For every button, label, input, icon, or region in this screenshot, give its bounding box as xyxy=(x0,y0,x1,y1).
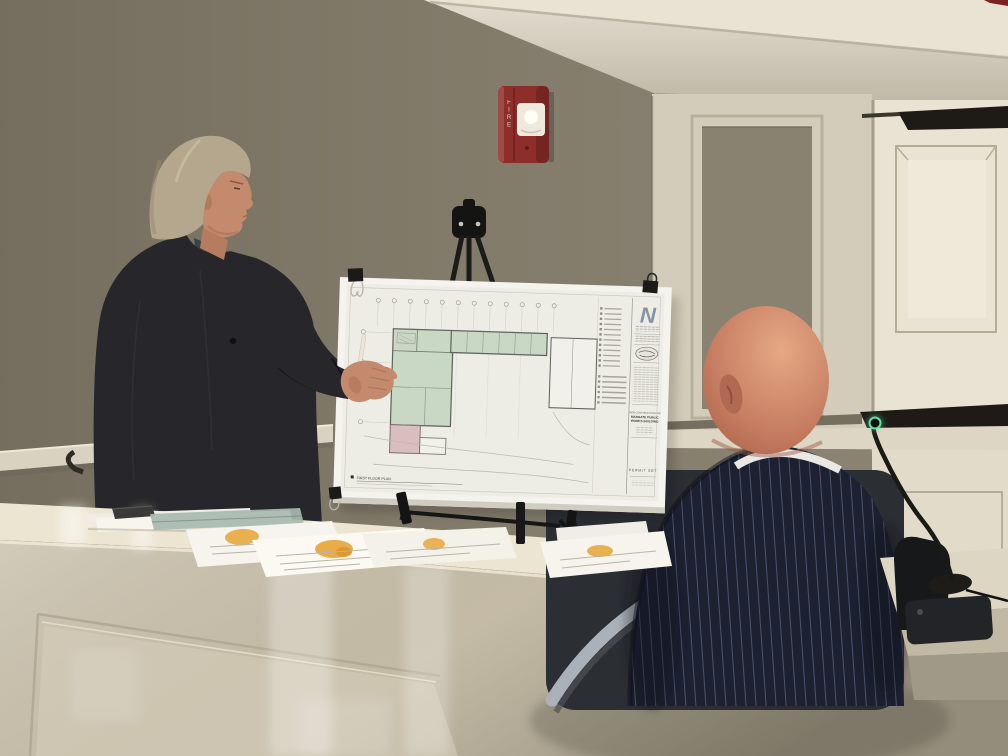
meeting-room-photo: FIRE xyxy=(0,0,1008,756)
jacket-button xyxy=(230,338,236,344)
fire-alarm-label: FIRE xyxy=(506,100,512,130)
fire-alarm-strobe xyxy=(517,103,545,136)
plan-room-pink xyxy=(390,425,421,454)
notes-block xyxy=(632,365,659,402)
architect-logo: N xyxy=(640,302,658,328)
fire-alarm: FIRE xyxy=(498,86,554,163)
